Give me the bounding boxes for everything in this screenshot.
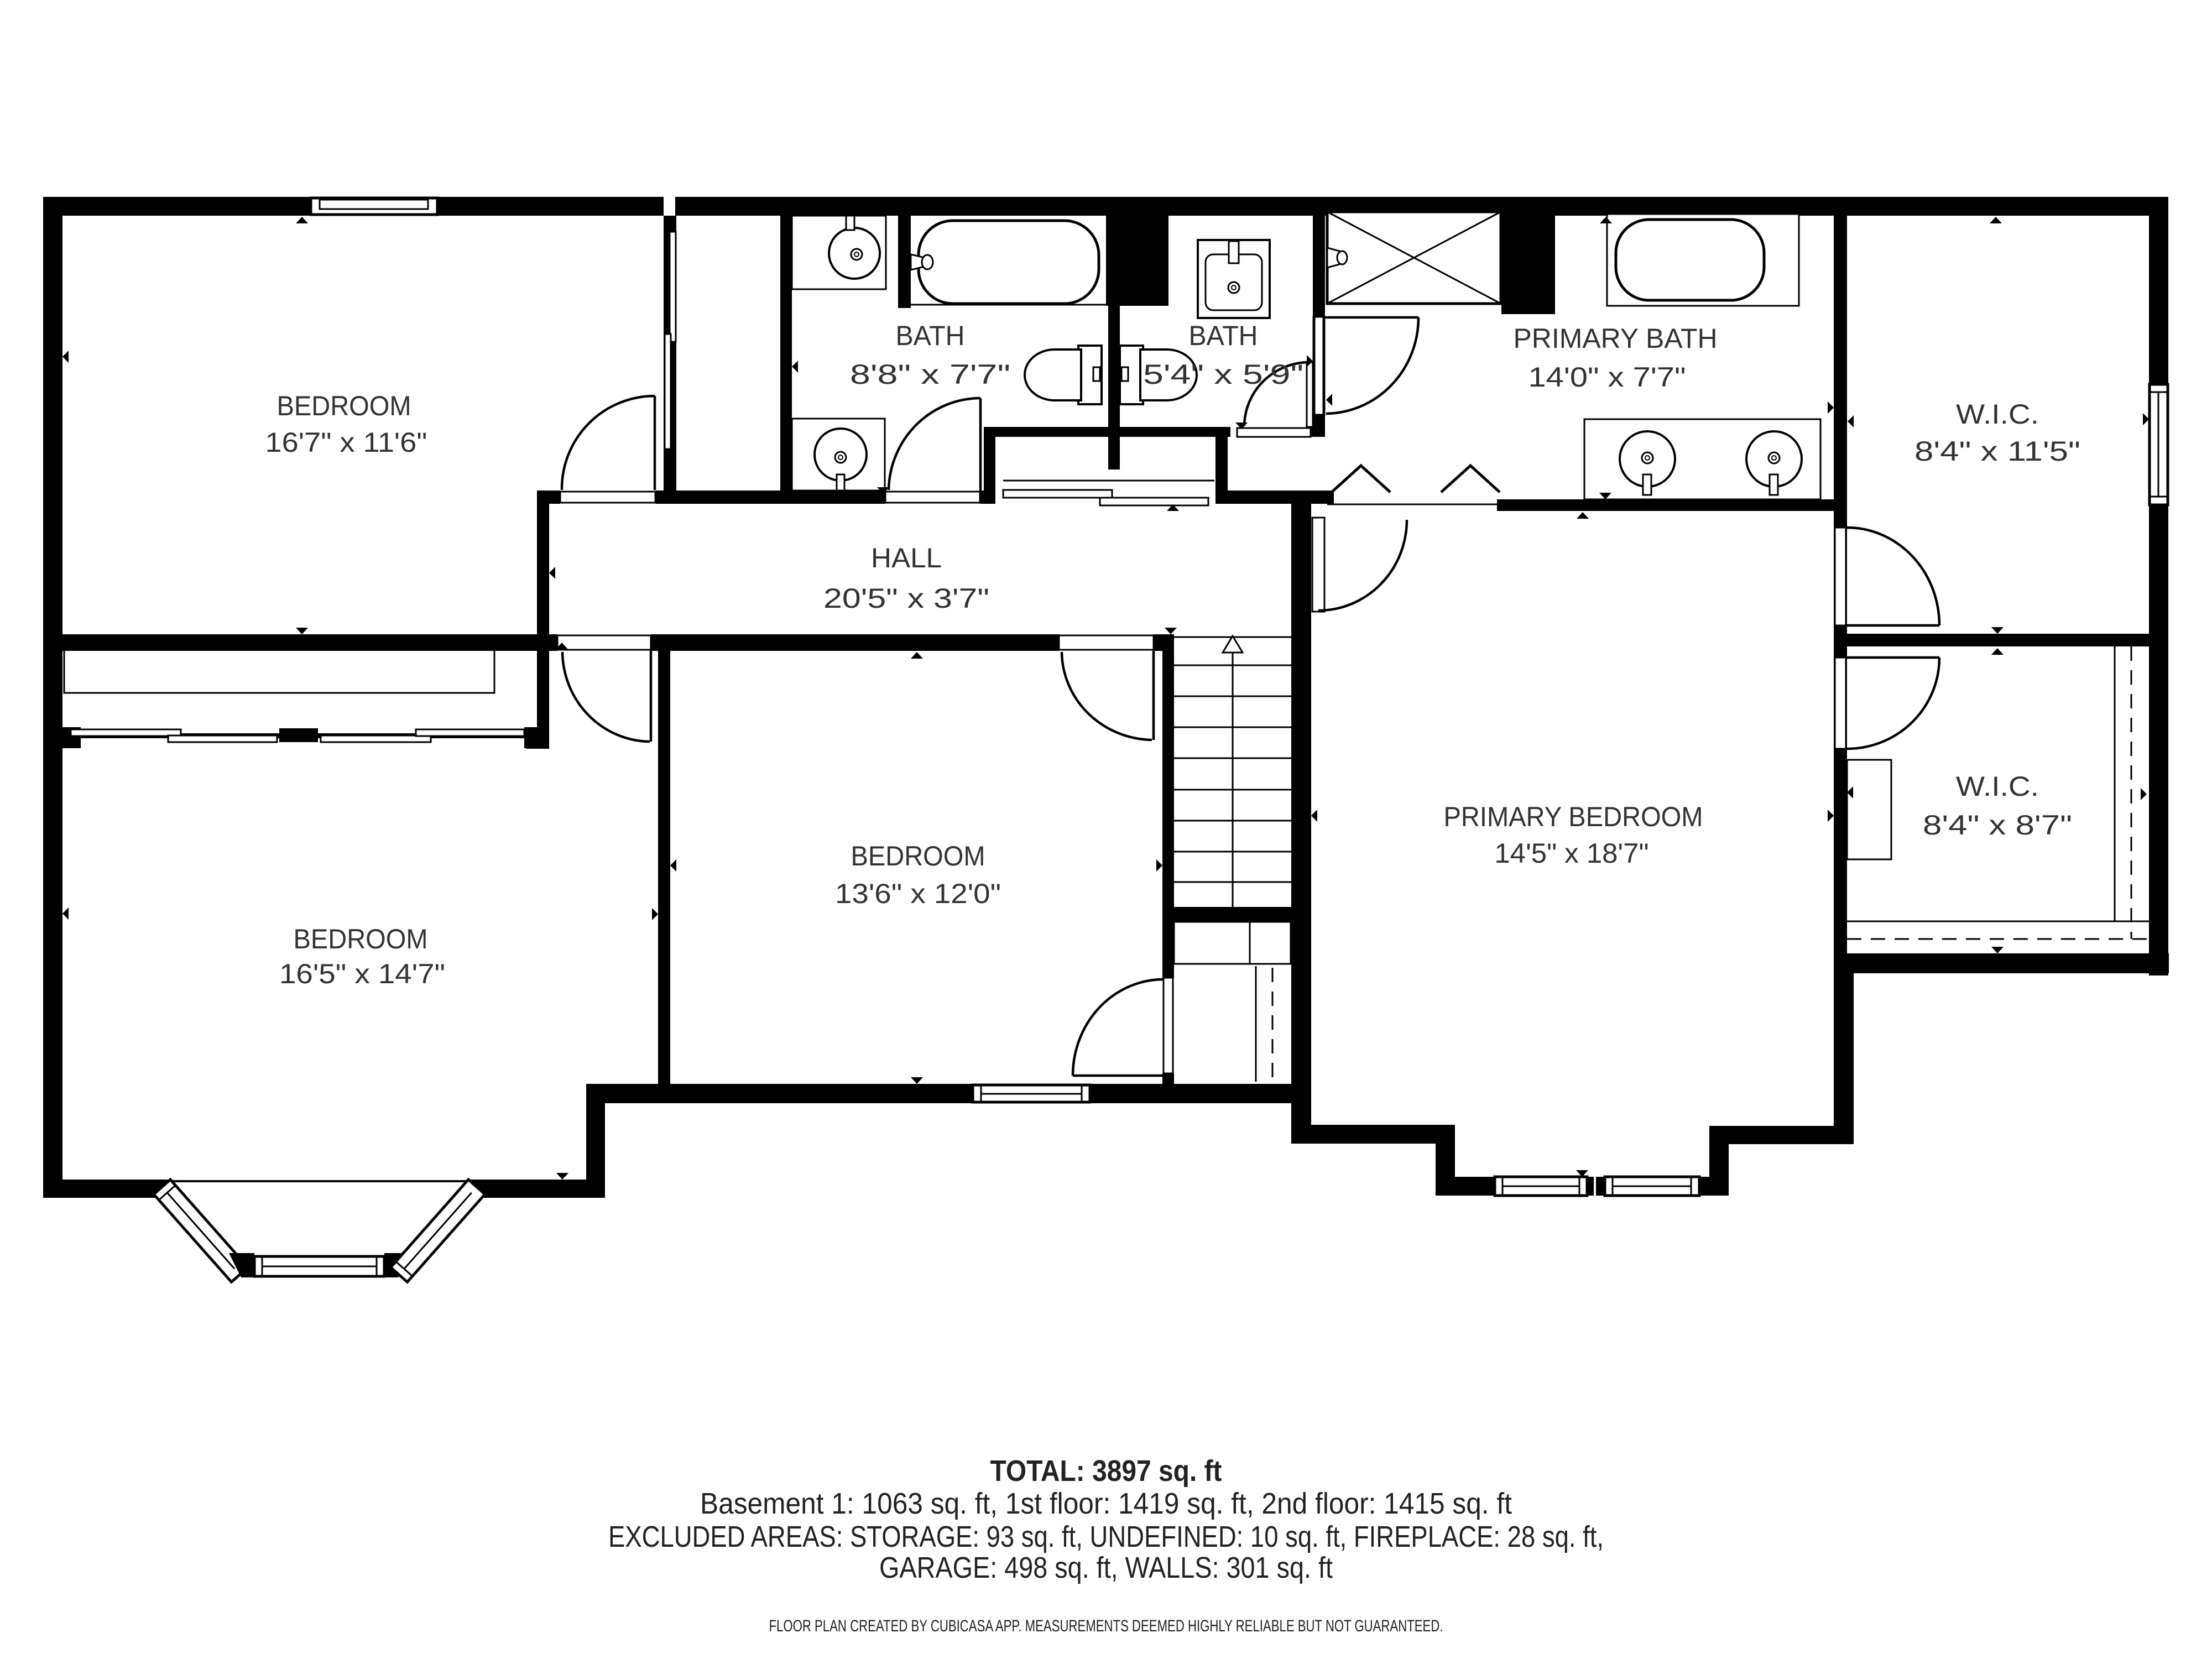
svg-text:16'5" x 14'7": 16'5" x 14'7" [279,958,445,989]
svg-text:14'0" x 7'7": 14'0" x 7'7" [1528,362,1686,393]
svg-text:8'8" x 7'7": 8'8" x 7'7" [850,359,1010,390]
svg-text:Basement 1: 1063 sq. ft, 1st f: Basement 1: 1063 sq. ft, 1st floor: 1419… [700,1487,1512,1520]
svg-text:W.I.C.: W.I.C. [1956,771,2039,802]
svg-text:BEDROOM: BEDROOM [851,841,985,872]
svg-text:TOTAL: 3897 sq. ft: TOTAL: 3897 sq. ft [990,1454,1222,1488]
svg-text:GARAGE: 498 sq. ft, WALLS: 301: GARAGE: 498 sq. ft, WALLS: 301 sq. ft [879,1551,1333,1584]
svg-text:BEDROOM: BEDROOM [277,390,411,421]
svg-text:16'7" x 11'6": 16'7" x 11'6" [265,427,427,458]
svg-text:8'4" x 11'5": 8'4" x 11'5" [1914,436,2080,467]
svg-text:PRIMARY BATH: PRIMARY BATH [1514,323,1718,354]
svg-text:BEDROOM: BEDROOM [294,924,428,954]
svg-text:8'4" x 8'7": 8'4" x 8'7" [1923,810,2072,841]
svg-text:PRIMARY BEDROOM: PRIMARY BEDROOM [1444,801,1703,832]
svg-text:EXCLUDED AREAS: STORAGE: 93 sq: EXCLUDED AREAS: STORAGE: 93 sq. ft, UNDE… [608,1520,1604,1553]
svg-text:5'4" x 5'9": 5'4" x 5'9" [1143,359,1303,390]
svg-text:13'6" x 12'0": 13'6" x 12'0" [835,878,1001,909]
svg-text:FLOOR PLAN CREATED BY CUBICASA: FLOOR PLAN CREATED BY CUBICASA APP. MEAS… [769,1617,1443,1635]
svg-text:14'5" x 18'7": 14'5" x 18'7" [1495,838,1649,869]
svg-text:W.I.C.: W.I.C. [1956,399,2039,430]
svg-text:BATH: BATH [896,320,965,351]
svg-text:20'5" x 3'7": 20'5" x 3'7" [823,583,989,614]
svg-text:BATH: BATH [1189,320,1258,351]
svg-text:HALL: HALL [871,542,942,573]
